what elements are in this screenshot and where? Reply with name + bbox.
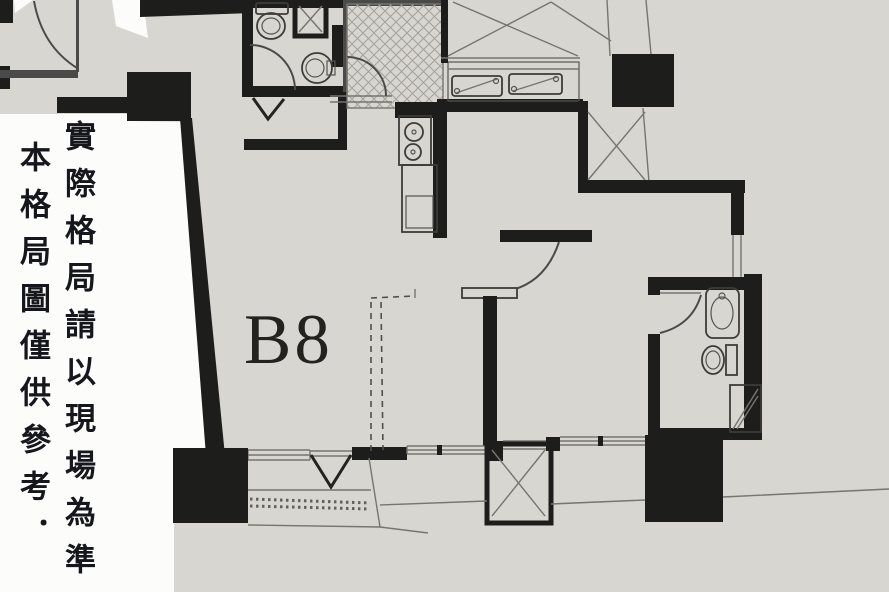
column-southwest [173, 448, 248, 523]
disclaimer-column-2: 實際格局請以現場為準 [60, 120, 94, 590]
unit-label: B8 [244, 300, 333, 381]
column-southeast [645, 435, 723, 522]
bedroom-partition-wall [483, 296, 497, 446]
floorplan-svg [0, 0, 889, 592]
tile-hatch [347, 4, 443, 108]
column-northeast [612, 54, 674, 107]
entry-foyer [330, 4, 443, 108]
disclaimer-column-1: 本格局圖僅供參考． [15, 141, 49, 564]
